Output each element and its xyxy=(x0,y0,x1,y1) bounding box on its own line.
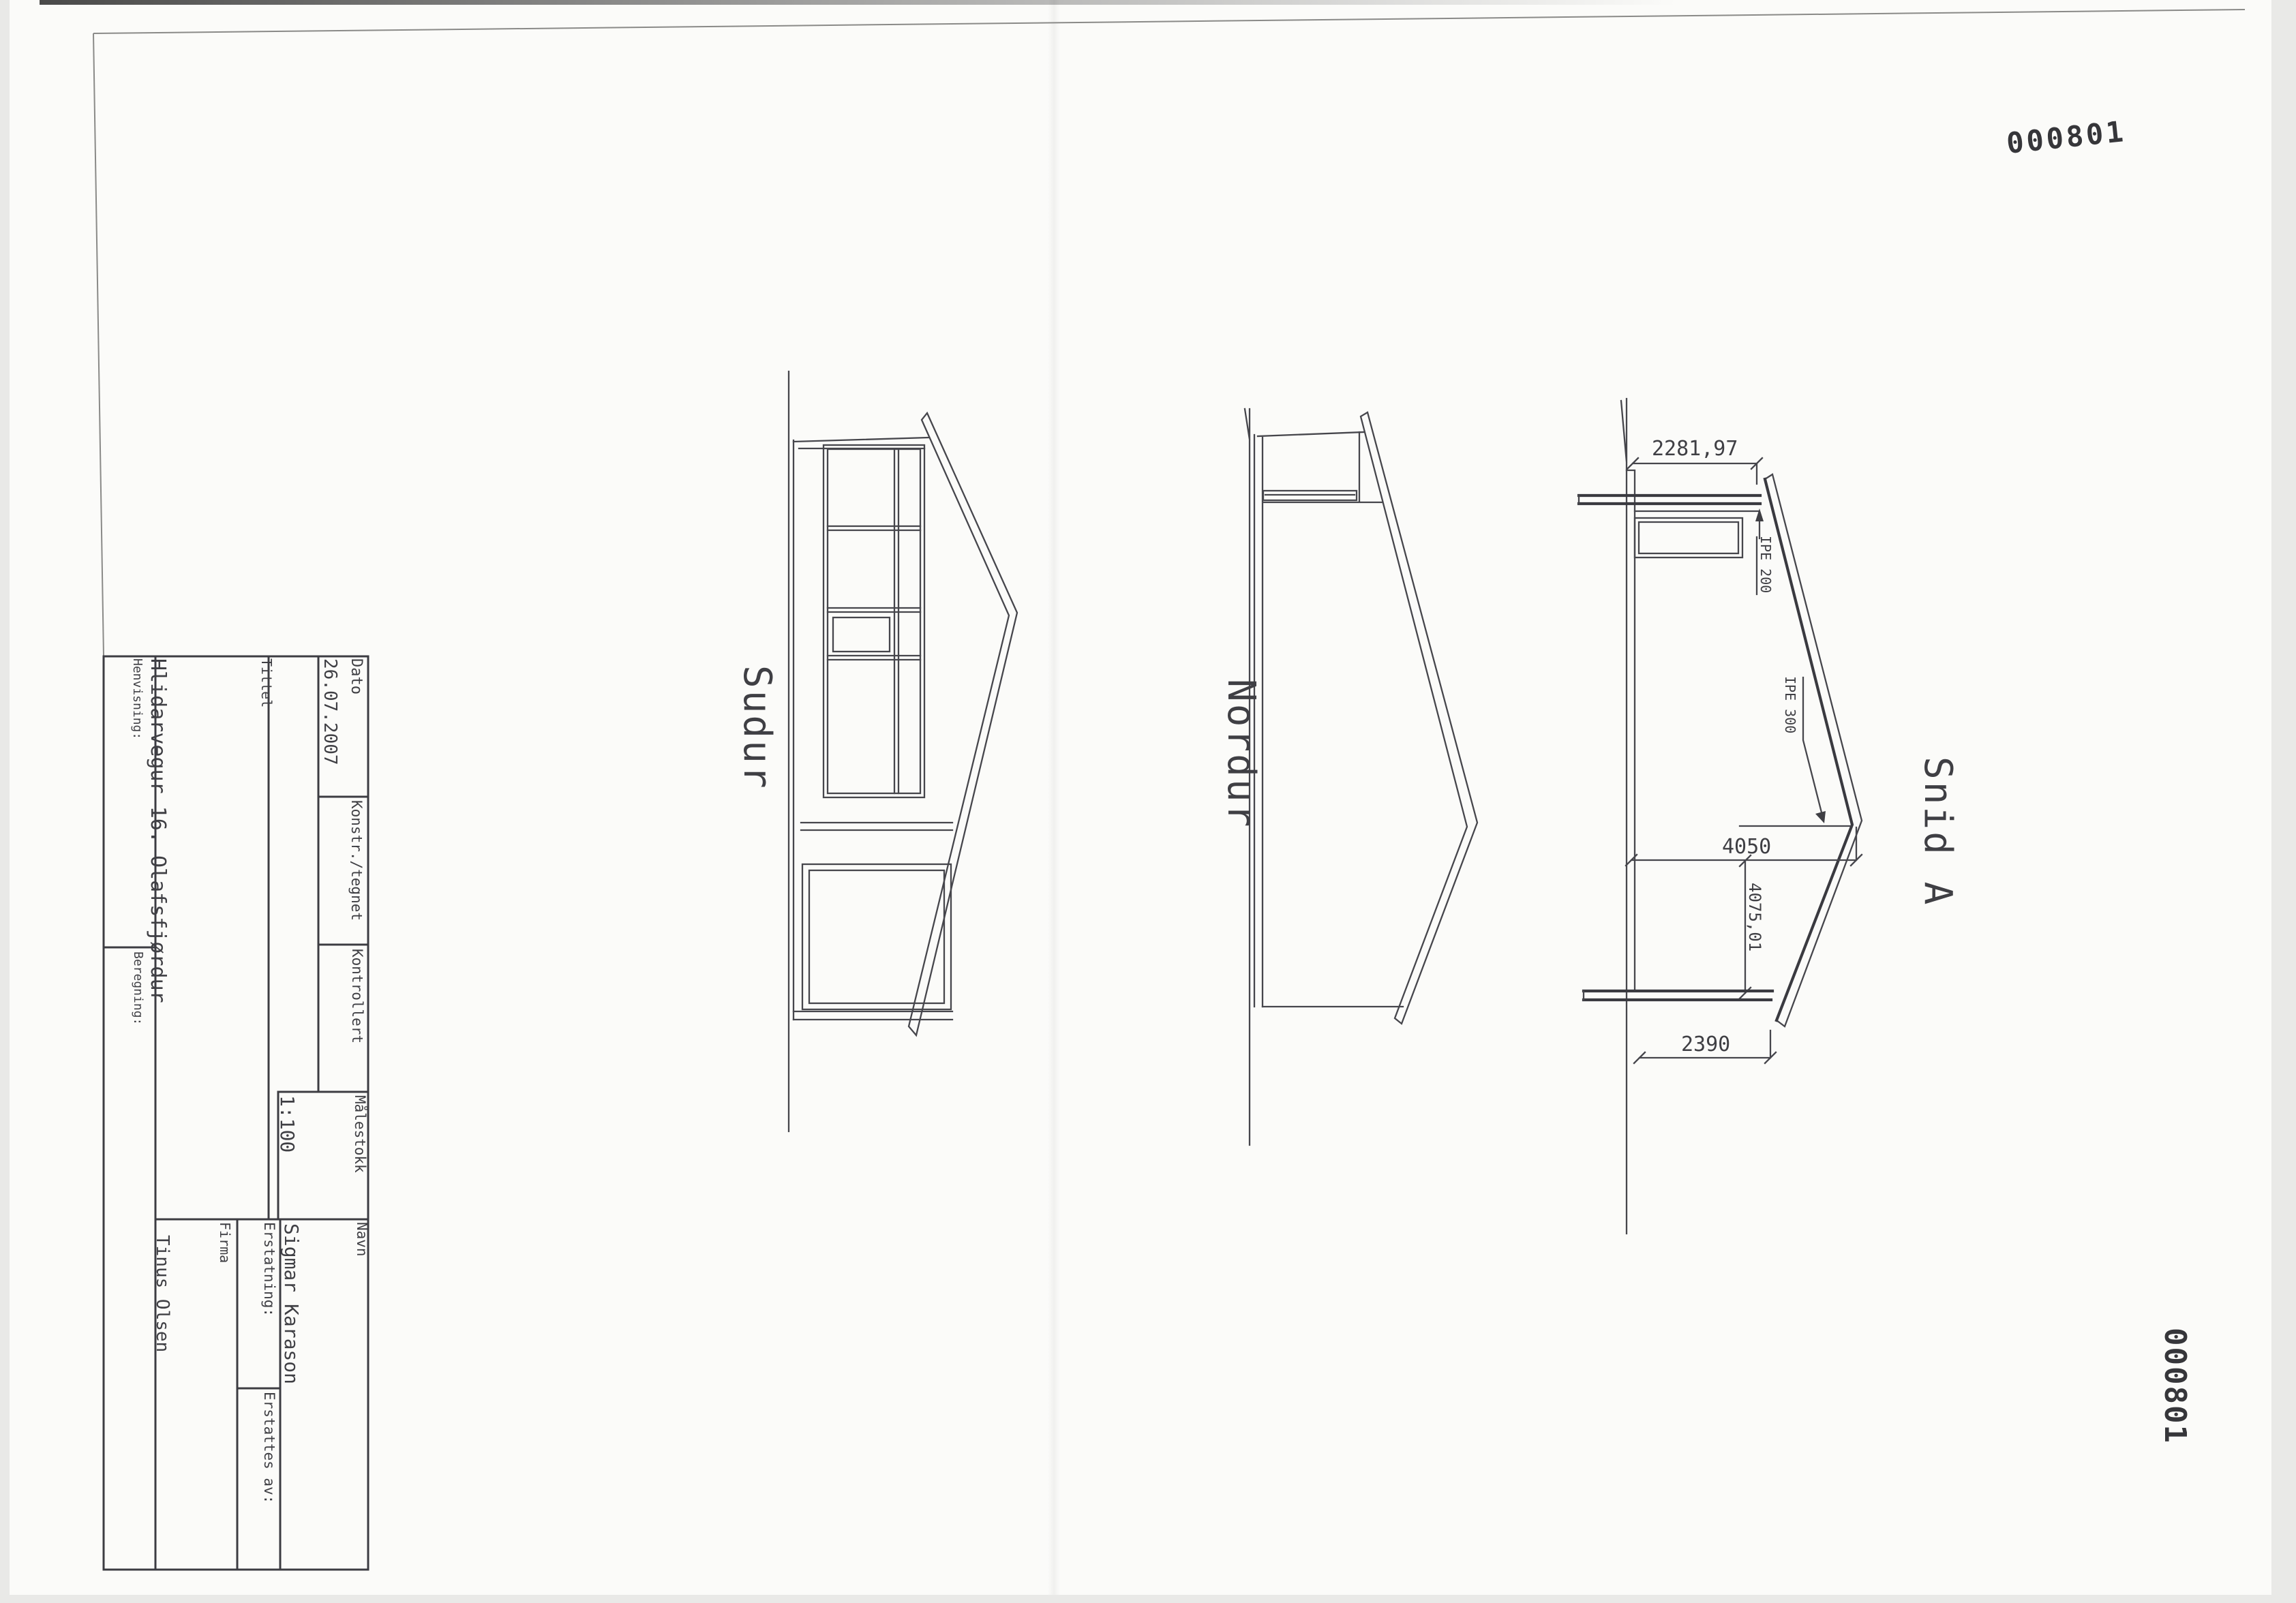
south-window-mullion xyxy=(894,449,898,793)
frame-top-line xyxy=(93,10,2245,33)
dimension-eave-height-text: 2390 xyxy=(1681,1033,1730,1056)
section-window-beam xyxy=(1635,518,1742,558)
stamp-number-bottom: 000801 xyxy=(2158,1328,2192,1444)
konstr-tegnet-label: Konstr./tegnet xyxy=(348,800,365,921)
dato-label: Dato xyxy=(348,658,365,694)
north-view-label: Nordur xyxy=(1219,679,1263,829)
archive-stamps: 000801 000801 xyxy=(2005,114,2192,1444)
tittel-label: Tittel xyxy=(258,658,275,707)
frame-left-line xyxy=(93,33,104,656)
kontrollert-label: Kontrollert xyxy=(349,949,365,1043)
malestokk-label: Målestokk xyxy=(352,1095,369,1173)
south-window-band-frame xyxy=(824,445,924,797)
section-roof-edge xyxy=(1765,474,1862,1026)
section-floor-slab xyxy=(1584,991,1772,1000)
section-grade-line xyxy=(1621,399,1627,1234)
ipe200-label: IPE 200 xyxy=(1757,536,1774,593)
south-facade-bottom-edges xyxy=(794,1011,952,1020)
north-roof-edge xyxy=(1361,412,1477,1024)
navn-label: Navn xyxy=(354,1222,370,1257)
south-small-window xyxy=(833,617,890,652)
section-ceiling-beam xyxy=(1579,495,1760,504)
dimension-top-width-text: 2281,97 xyxy=(1652,437,1738,461)
south-window-band-frame-inner xyxy=(828,449,920,793)
north-facade-top-edge xyxy=(1258,432,1363,436)
north-elevation-view: Nordur xyxy=(1219,409,1477,1145)
dimension-ridge-height-text: 4050 xyxy=(1722,835,1771,859)
section-window-beam-inner xyxy=(1639,522,1738,553)
south-lower-opening xyxy=(802,864,951,1009)
title-block: Henvisning: Beregning: Tittel Hlidarvegu… xyxy=(104,656,370,1570)
tittel-value: Hlidarvegur 16. Olafsfjørdur xyxy=(146,658,170,1003)
section-view-label: Snid A xyxy=(1916,757,1960,906)
south-lower-opening-inner xyxy=(809,870,944,1003)
malestokk-value: 1:100 xyxy=(276,1095,299,1152)
sheet-frame xyxy=(93,10,2245,656)
beregning-label: Beregning: xyxy=(131,951,145,1025)
ipe300-label: IPE 300 xyxy=(1782,676,1798,733)
dato-value: 26.07.2007 xyxy=(320,658,340,765)
dimension-line-top-width xyxy=(1627,458,1762,484)
section-wall-inner-face xyxy=(1627,470,1635,991)
south-window-rails xyxy=(828,526,920,660)
henvisning-label: Henvisning: xyxy=(130,658,145,739)
north-window-strip-lines xyxy=(1263,432,1383,502)
stamp-number-top: 000801 xyxy=(2005,114,2128,160)
south-elevation-view: Sudur xyxy=(735,371,1017,1131)
firma-label: Firma xyxy=(217,1222,233,1263)
section-a-view: 2281,97 IPE 200 IPE 300 4050 4075,01 239… xyxy=(1579,399,1960,1234)
south-facade-top-edges xyxy=(794,438,928,448)
section-roof-member-thick xyxy=(1765,479,1852,1020)
firma-value: Tinus Olsen xyxy=(152,1235,172,1352)
ipe300-arrowhead xyxy=(1815,811,1826,823)
title-block-row-lines xyxy=(104,797,368,1388)
erstattes-av-label: Erstattes av: xyxy=(261,1392,277,1503)
drawing-canvas: Henvisning: Beregning: Tittel Hlidarvegu… xyxy=(0,0,2296,1603)
title-block-border xyxy=(104,656,368,1570)
dimension-span-text: 4075,01 xyxy=(1745,883,1764,951)
south-view-label: Sudur xyxy=(735,665,779,791)
navn-value: Sigmar Karason xyxy=(280,1223,303,1384)
erstatning-label: Erstatning: xyxy=(261,1222,277,1317)
south-mid-band-lines xyxy=(801,823,952,830)
scanned-drawing-sheet: Henvisning: Beregning: Tittel Hlidarvegu… xyxy=(0,0,2296,1603)
